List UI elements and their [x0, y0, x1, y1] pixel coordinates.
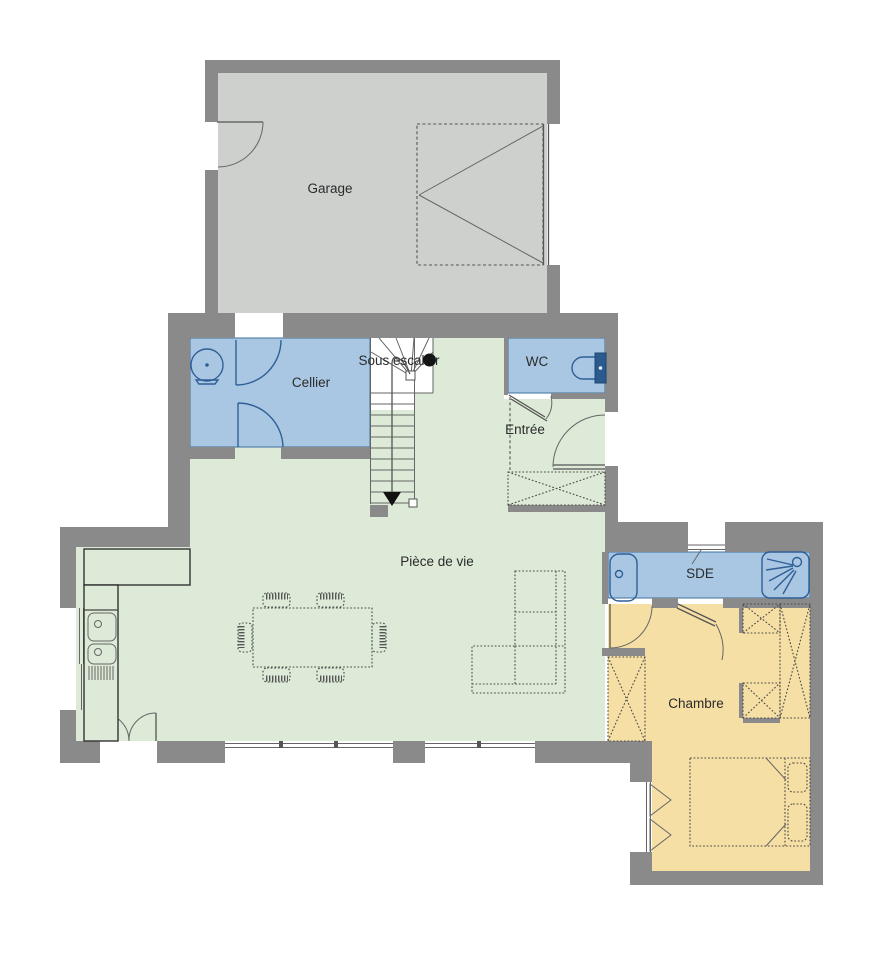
piece-de-vie-label: Pièce de vie	[400, 554, 474, 569]
living-bay-window-2	[425, 741, 535, 748]
cellier-label: Cellier	[292, 375, 331, 390]
wc-label: WC	[526, 354, 549, 369]
sde-label: SDE	[686, 566, 714, 581]
living-bay-window-1	[225, 741, 393, 748]
garage-floor	[218, 73, 547, 313]
floor-plan: Garage Cellier Sous escalier WC Entrée P…	[0, 0, 894, 960]
floor-plan-canvas: Garage Cellier Sous escalier WC Entrée P…	[0, 0, 894, 960]
entree-label: Entrée	[505, 422, 545, 437]
chambre-label: Chambre	[668, 696, 724, 711]
garage-label: Garage	[307, 181, 352, 196]
label-dot-icon	[423, 354, 436, 367]
